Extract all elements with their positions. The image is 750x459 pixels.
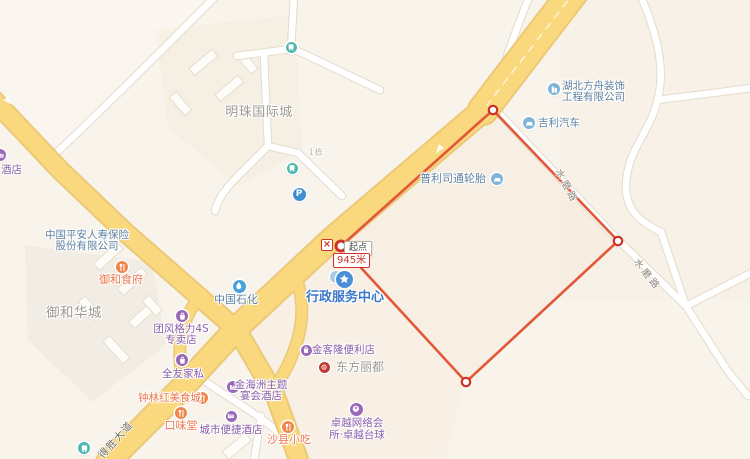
measure-delete-button[interactable]: ×	[321, 239, 333, 251]
poi-chengshi-bianjie-jiudian[interactable]: 城市便捷酒店	[200, 424, 263, 436]
landmark-icon[interactable]	[319, 362, 330, 373]
poi-yuhe-shifu[interactable]: 御和食府	[99, 274, 143, 287]
poi-pulisitong-luntai[interactable]: 普利司通轮胎	[420, 173, 486, 186]
bus-icon[interactable]	[287, 163, 298, 174]
poi-jiudian-partial[interactable]: 酒店	[1, 164, 22, 176]
poi-zhuoyue-wangluo[interactable]: 卓越网络会所·卓越台球	[329, 418, 385, 441]
poi-zhonglinhong-meishicheng[interactable]: 钟林红美食城	[138, 392, 201, 404]
close-x-icon: ×	[323, 240, 331, 250]
measure-distance-label: 945米	[333, 253, 370, 268]
bus-icon[interactable]	[286, 42, 297, 53]
poi-zhongguo-pingan[interactable]: 中国平安人寿保险股份有限公司	[45, 230, 129, 252]
poi-shaxian-xiaochi[interactable]: 沙县小吃	[267, 434, 311, 447]
poi-xingzheng-fuwu-zhongxin[interactable]: 行政服务中心	[306, 291, 384, 306]
poi-hubei-fangzhou[interactable]: 湖北方舟装饰工程有限公司	[562, 81, 625, 103]
company-icon[interactable]	[548, 83, 560, 95]
shop-icon[interactable]	[176, 354, 188, 366]
poi-jili-qiche[interactable]: 吉利汽车	[538, 117, 580, 129]
shop-icon[interactable]	[301, 345, 312, 356]
car-icon[interactable]	[491, 173, 503, 185]
car-icon[interactable]	[523, 117, 535, 129]
poi-kouweitang[interactable]: 口味堂	[165, 420, 198, 433]
shop-icon[interactable]	[176, 310, 188, 322]
gov-icon[interactable]	[336, 271, 353, 288]
poi-quanyou-jiasi[interactable]: 全友家私	[162, 368, 204, 380]
food-icon[interactable]	[175, 407, 187, 419]
parking-icon[interactable]: P	[293, 188, 306, 201]
map-canvas[interactable]: 水磨路水磨路得胜大道 明珠国际城御和华城1栋 湖北方舟装饰工程有限公司吉利汽车普…	[0, 0, 750, 459]
route-vertex-bottom[interactable]	[462, 378, 470, 386]
food-icon[interactable]	[282, 421, 294, 433]
gas-icon[interactable]	[233, 280, 246, 293]
poi-tuanfeng-geli-4s[interactable]: 团风格力4S专卖店	[153, 324, 208, 346]
hotel-icon[interactable]	[226, 411, 237, 422]
billiard-icon[interactable]	[350, 403, 363, 416]
poi-jinkelong-bianlidian[interactable]: 金客隆便利店	[312, 344, 375, 356]
food-icon[interactable]	[116, 261, 128, 273]
poi-dongfang-lidu[interactable]: 东方丽都	[336, 361, 384, 375]
poi-jinhaizhou-zhuti[interactable]: 金海洲主题宴会酒店	[235, 380, 288, 401]
bus-icon[interactable]	[78, 442, 90, 454]
poi-zhongguo-shihua[interactable]: 中国石化	[214, 294, 258, 307]
route-vertex-right[interactable]	[614, 237, 622, 245]
route-vertex-top[interactable]	[489, 106, 497, 114]
